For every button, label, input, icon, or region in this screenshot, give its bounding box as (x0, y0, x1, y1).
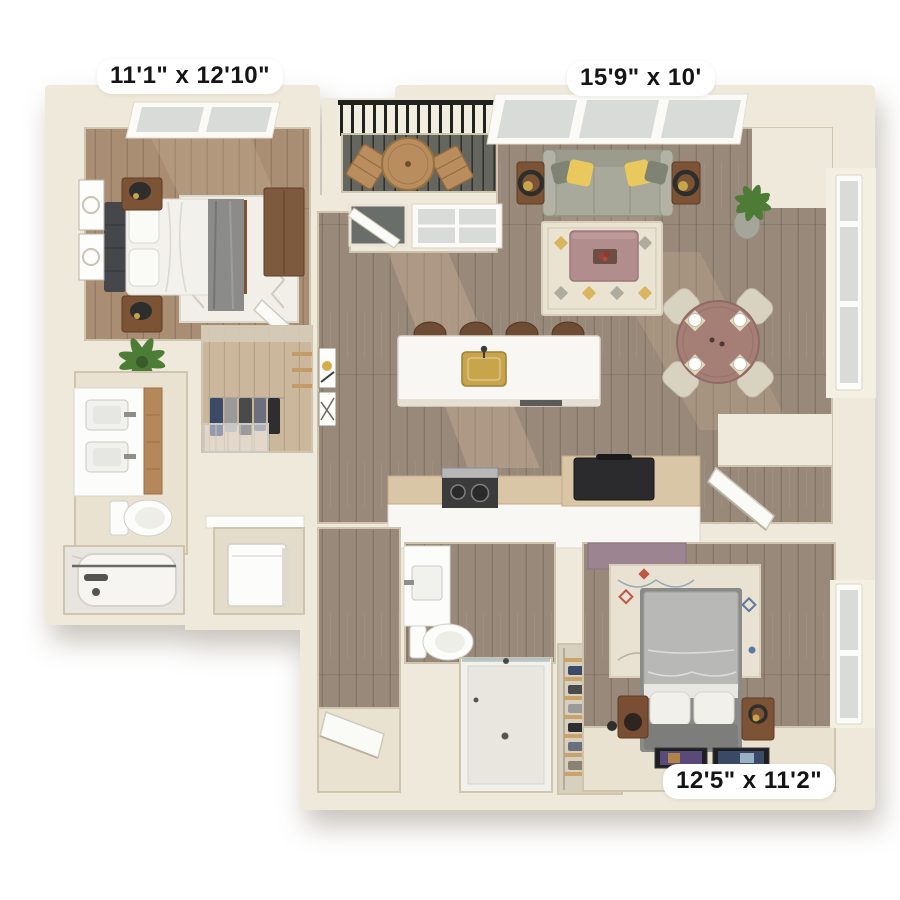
hall-floor-wood (318, 528, 400, 708)
walk-in-closet (202, 326, 312, 452)
bedroom1-window (126, 102, 280, 138)
stove (442, 468, 498, 508)
bed1-pillow (129, 249, 159, 286)
shower-door-handle (503, 658, 509, 664)
bathroom1-toilet (110, 500, 172, 536)
bathroom1-tub (64, 546, 184, 614)
sofa (543, 150, 673, 216)
floor-lamp (607, 721, 617, 731)
dining-set (659, 285, 777, 401)
shower (460, 658, 552, 792)
bathroom-1 (64, 372, 187, 614)
bed2-pillow (650, 692, 690, 726)
bedroom-2 (583, 543, 875, 791)
coffee-table (570, 231, 638, 281)
laundry-counter (206, 516, 304, 528)
vanity-cabinet (144, 388, 162, 494)
bed1-pillow (129, 206, 159, 243)
countertop-appliance (574, 454, 654, 500)
bed2-duvet (644, 592, 738, 692)
balcony-table (382, 138, 434, 190)
bed2-base (644, 724, 738, 750)
bathroom2-vanity (404, 546, 450, 626)
pet-house-opening (624, 713, 642, 731)
bedroom1-nightstand-top (122, 178, 162, 210)
washer-dryer (228, 544, 290, 606)
faucet (124, 454, 136, 459)
kitchen-island (398, 336, 600, 406)
bedroom2-bed (640, 588, 742, 752)
bedroom1-wall-art (79, 180, 104, 280)
faucet (404, 580, 414, 585)
living-room-dimension-label: 15'9" x 10' (567, 61, 715, 96)
side-table-left (517, 162, 544, 204)
laundry-closet (206, 516, 304, 614)
bedroom2-nightstand-right (742, 698, 774, 740)
bedroom1-nightstand-bottom (122, 296, 162, 332)
side-table-right (672, 162, 700, 204)
bed1-headboard (104, 202, 126, 292)
bedroom2-dimension-label: 12'5" x 11'2" (663, 764, 835, 799)
vanity-sink (412, 566, 442, 600)
entry-closet-block (718, 414, 832, 466)
hallway-art (319, 348, 336, 426)
bathroom1-vanity (74, 388, 162, 496)
faucet (124, 412, 136, 417)
tub-faucet (84, 574, 108, 581)
balcony-entry (348, 204, 502, 248)
dining-table (677, 301, 759, 383)
bathroom2-toilet (410, 624, 473, 660)
bedroom1-wardrobe (264, 188, 304, 276)
shower-drain (502, 733, 509, 740)
floor-plan: 11'1" x 12'10" 15'9" x 10' 12'5" x 11'2" (0, 0, 900, 900)
bedroom2-window (830, 580, 875, 728)
sofa-pillow-yellow-left (566, 159, 594, 187)
kitchen-window (412, 204, 502, 248)
bed2-pillow (694, 692, 734, 726)
living-right-window (826, 168, 876, 398)
living-top-windows (487, 94, 748, 144)
bedroom1-dimension-label: 11'1" x 12'10" (97, 59, 283, 94)
wire-basket (204, 424, 268, 452)
